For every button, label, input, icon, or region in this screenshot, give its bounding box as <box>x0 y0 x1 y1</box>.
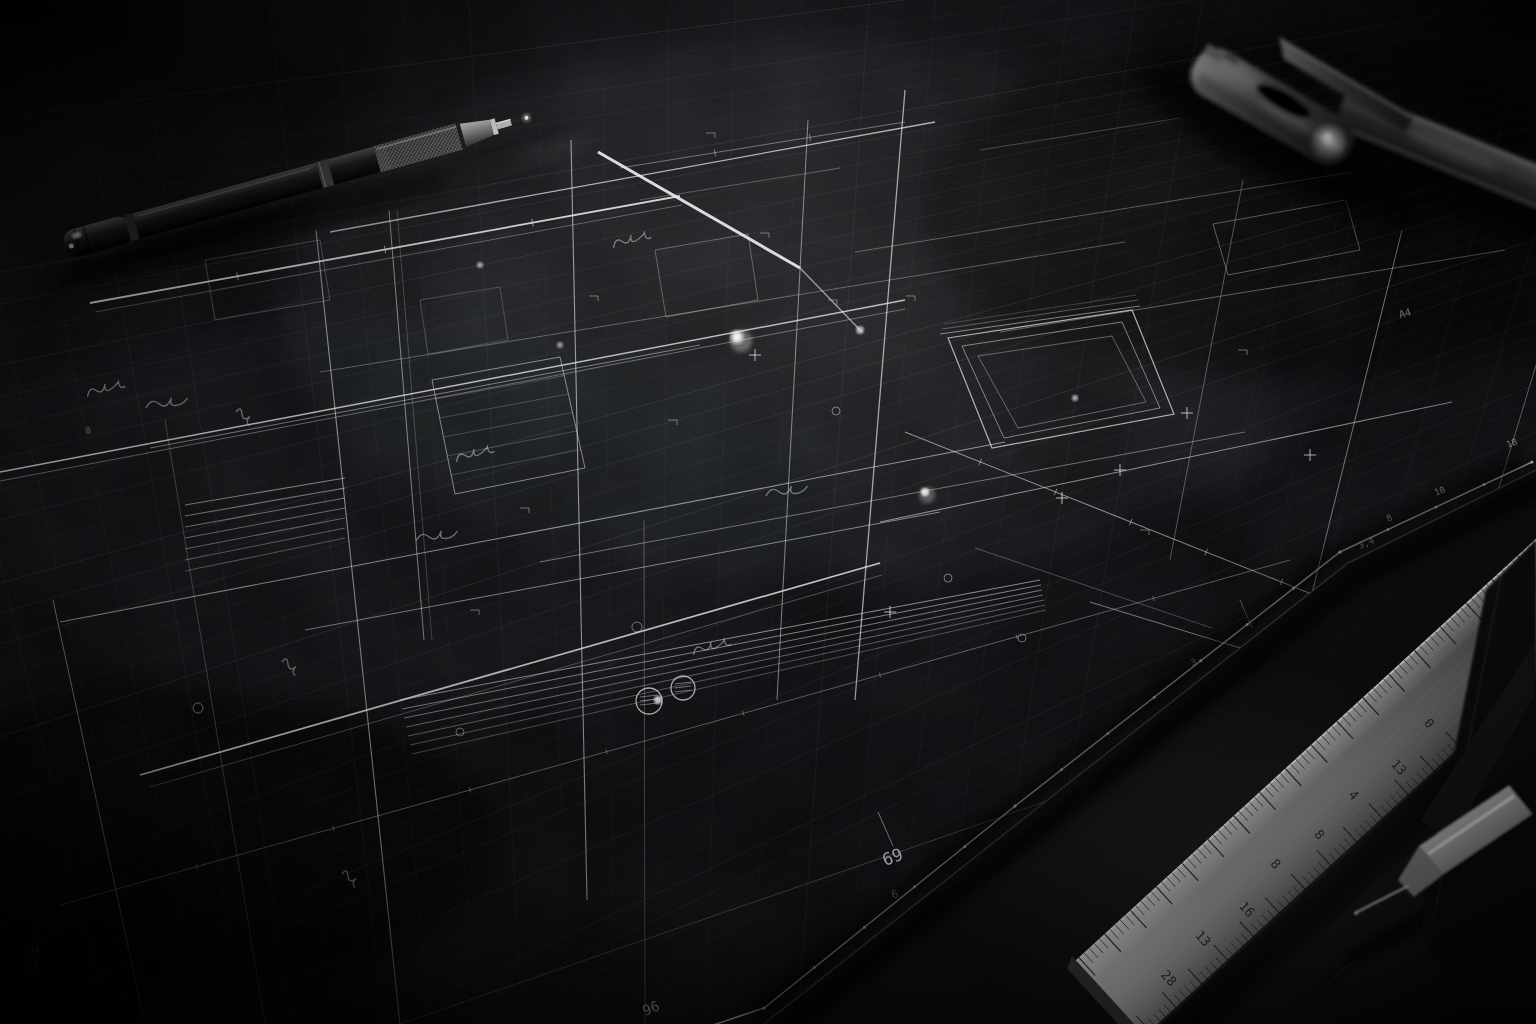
grain-overlay-dark <box>0 0 1536 1024</box>
blueprint-photo-scene: 69 96 6 3 A4 24 17 8 3,4 8 10 18 <box>0 0 1536 1024</box>
scene-canvas: 69 96 6 3 A4 24 17 8 3,4 8 10 18 <box>0 0 1536 1024</box>
